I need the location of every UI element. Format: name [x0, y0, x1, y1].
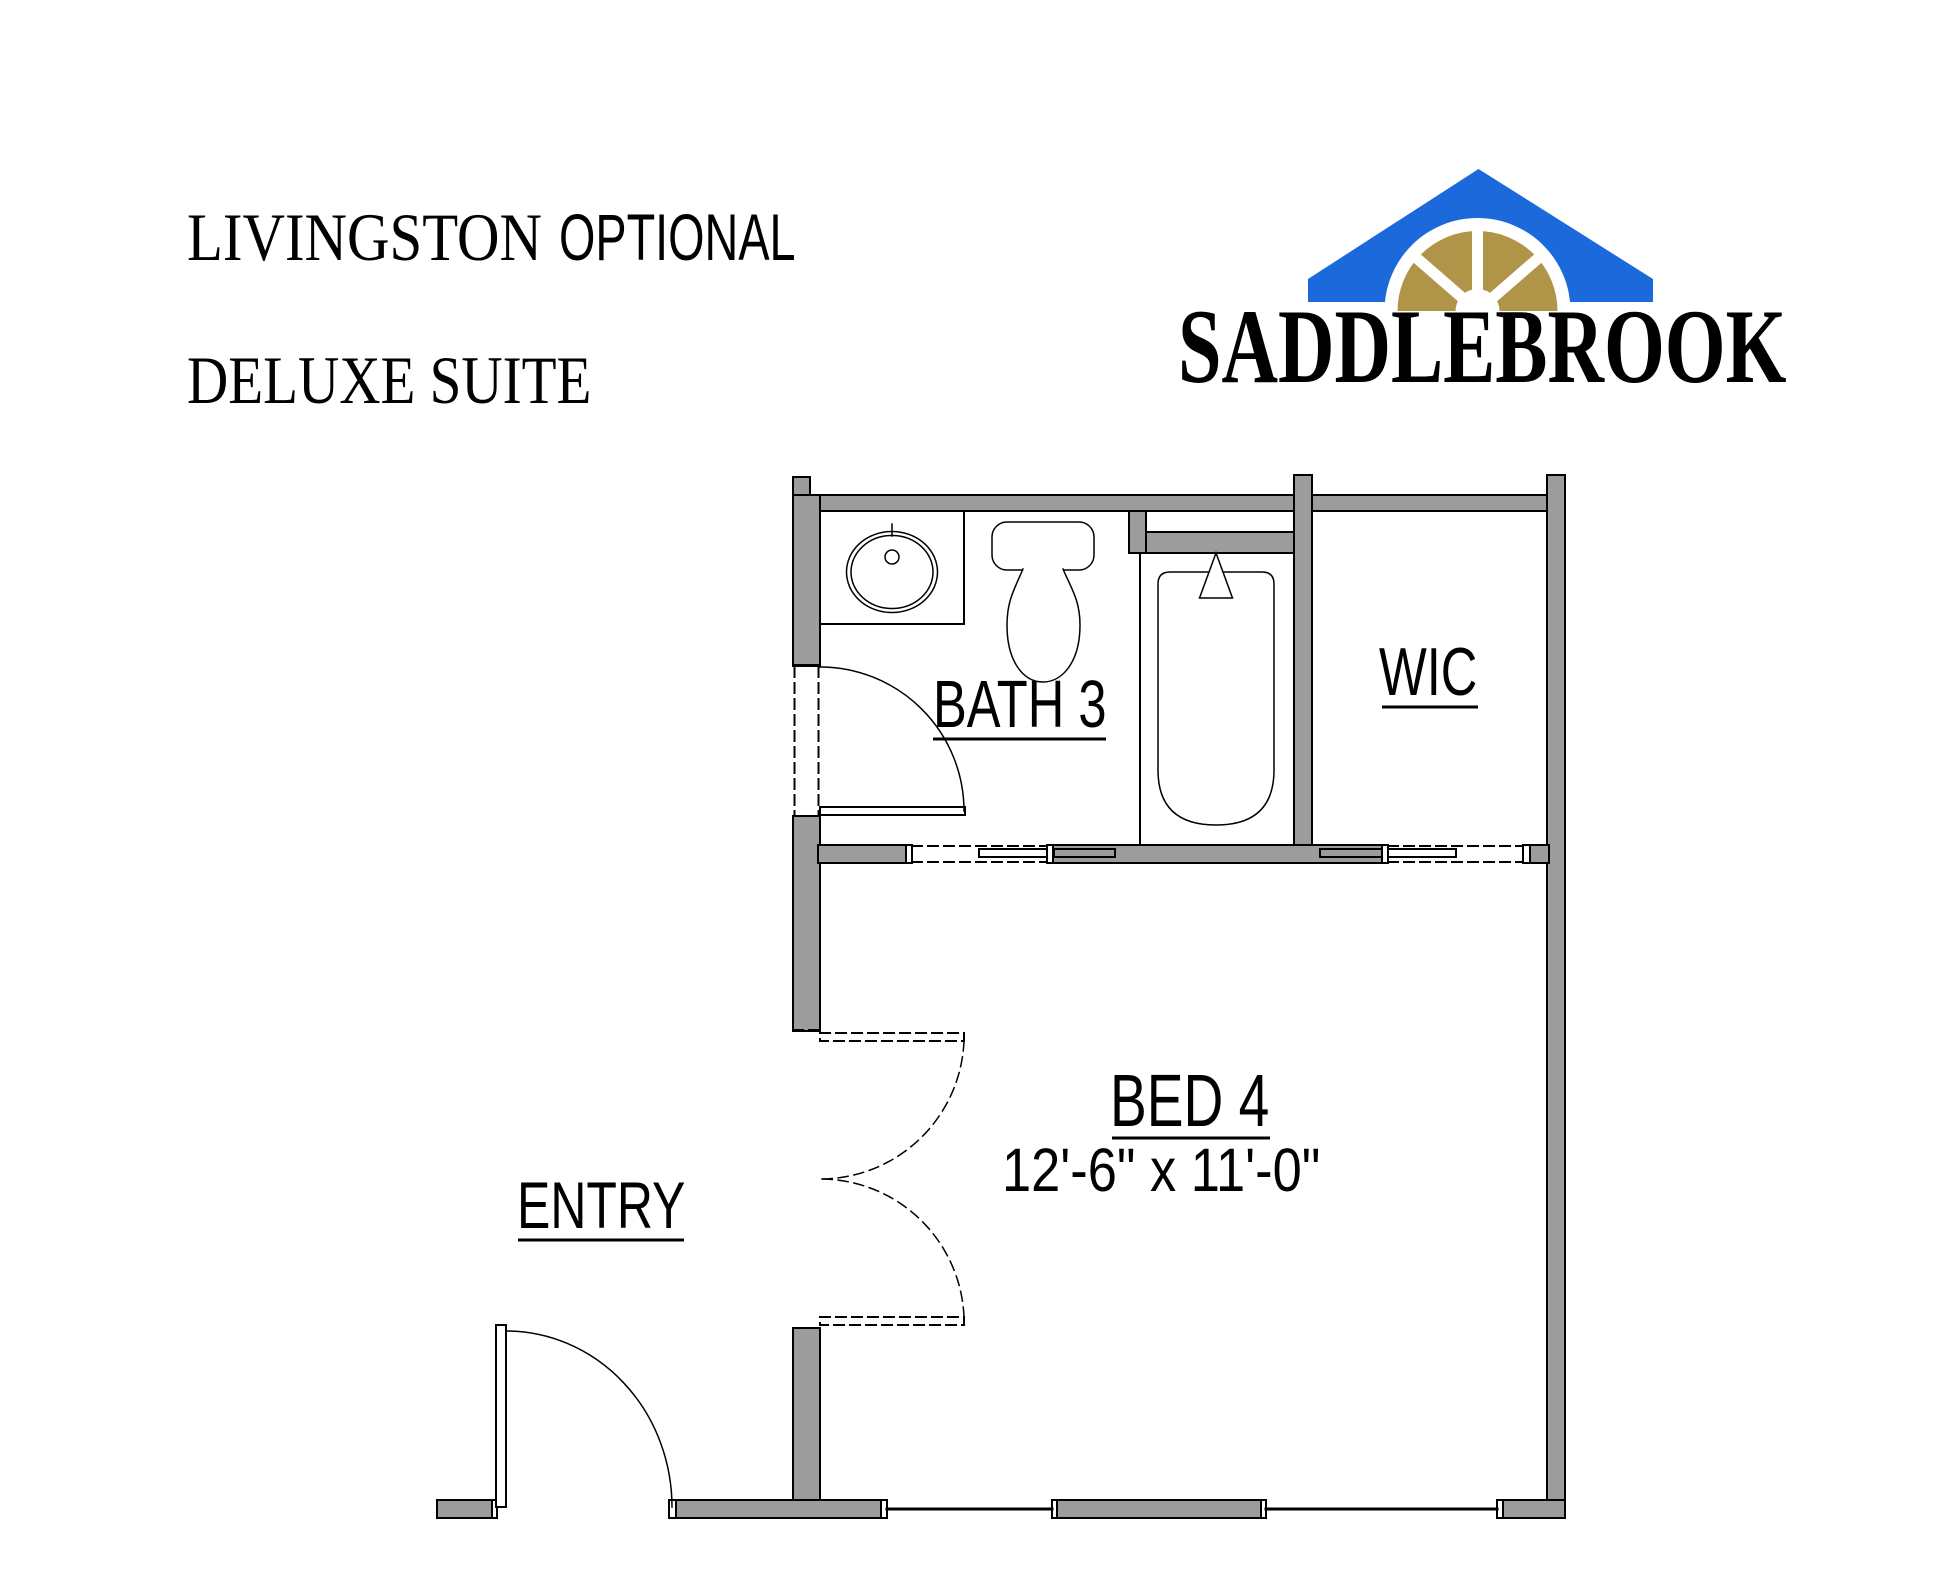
svg-text:WIC: WIC [1379, 634, 1477, 710]
svg-text:ENTRY: ENTRY [517, 1169, 685, 1242]
svg-text:BATH 3: BATH 3 [933, 666, 1107, 742]
svg-text:BED 4: BED 4 [1110, 1059, 1269, 1142]
svg-text:LIVINGSTON: LIVINGSTON [187, 199, 542, 275]
svg-text:DELUXE SUITE: DELUXE SUITE [187, 342, 591, 418]
svg-text:12'-6" x 11'-0": 12'-6" x 11'-0" [1002, 1137, 1320, 1205]
svg-text:OPTIONAL: OPTIONAL [559, 201, 796, 275]
svg-text:SADDLEBROOK: SADDLEBROOK [1178, 289, 1786, 406]
